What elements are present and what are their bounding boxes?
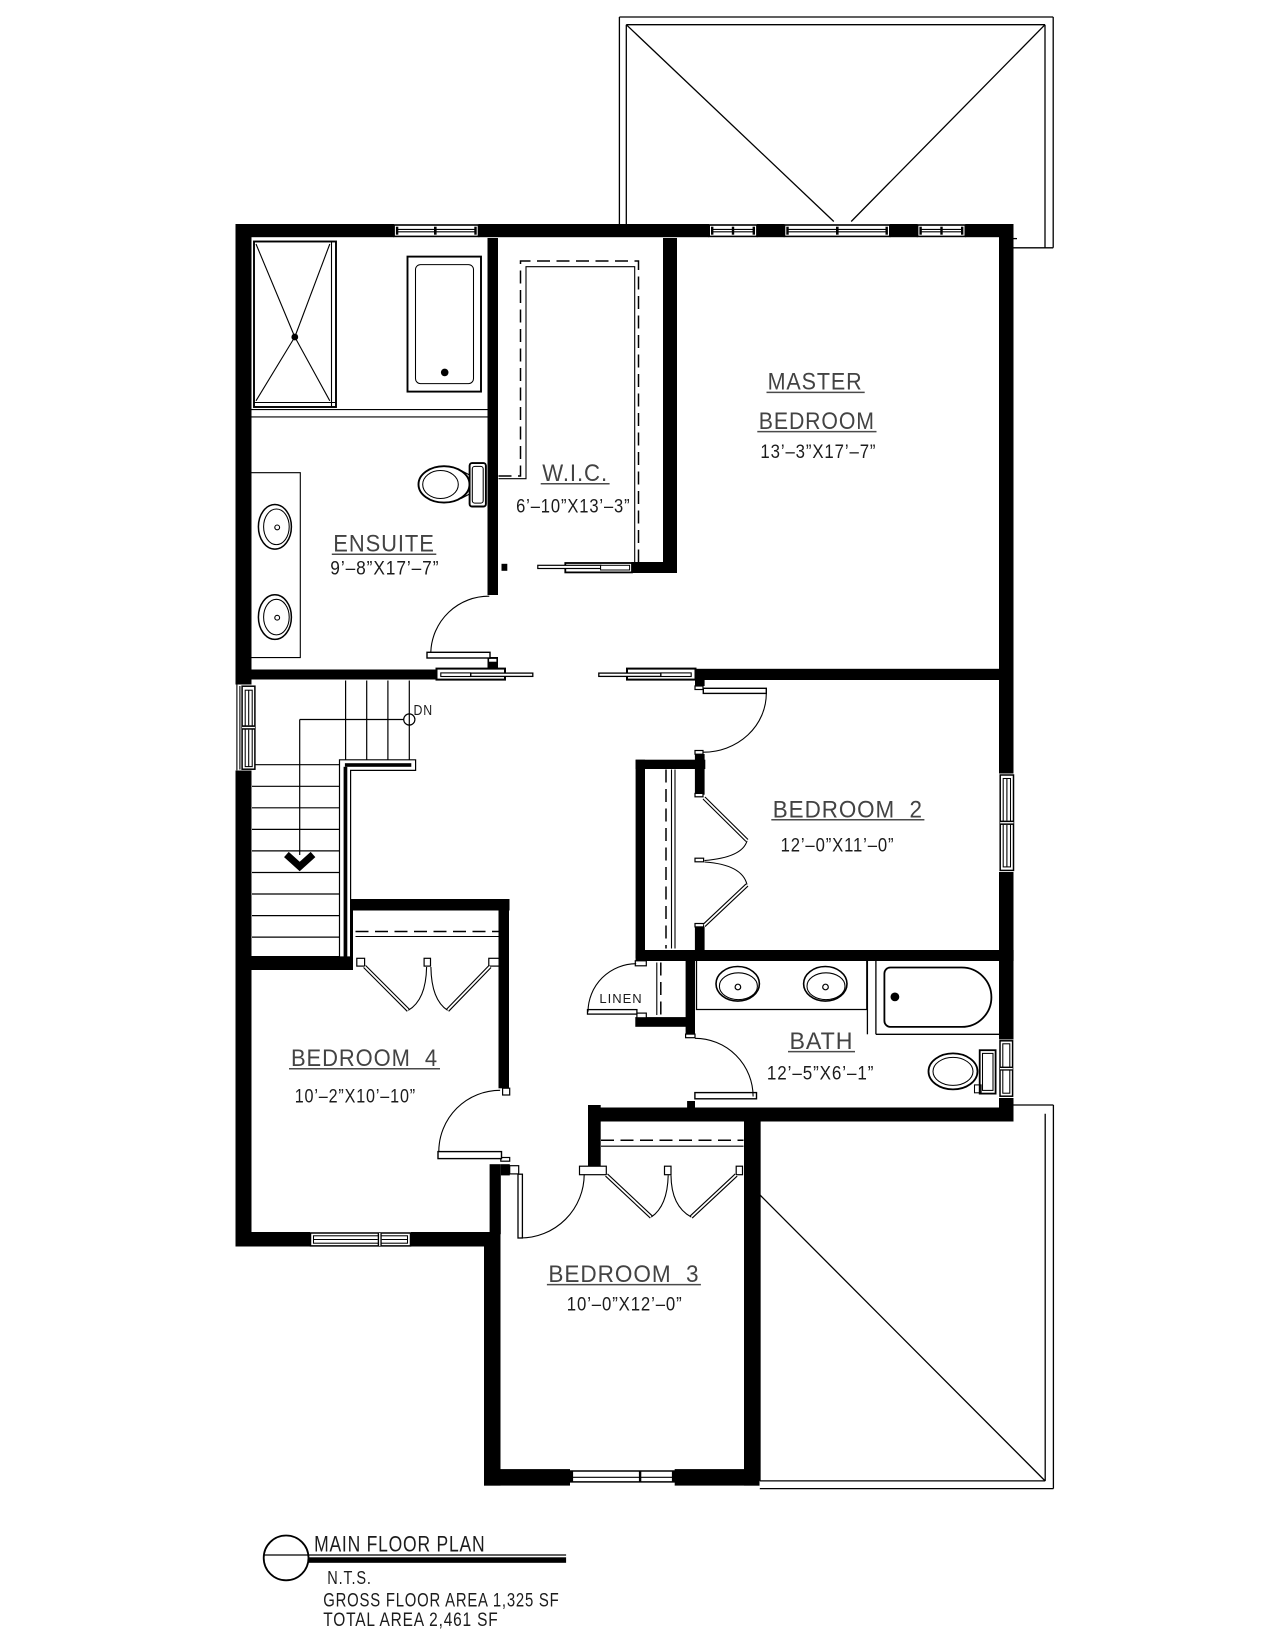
svg-text:N.T.S.: N.T.S. bbox=[327, 1568, 371, 1588]
svg-text:DN: DN bbox=[414, 703, 434, 719]
svg-text:12’–0”X11’–0”: 12’–0”X11’–0” bbox=[781, 836, 895, 857]
svg-text:LINEN: LINEN bbox=[599, 991, 642, 1006]
svg-text:TOTAL AREA 2,461 SF: TOTAL AREA 2,461 SF bbox=[323, 1610, 498, 1631]
svg-text:12’–5”X6’–1”: 12’–5”X6’–1” bbox=[767, 1064, 874, 1085]
svg-text:9’–8”X17’–7”: 9’–8”X17’–7” bbox=[330, 559, 439, 580]
svg-text:MAIN FLOOR PLAN: MAIN FLOOR PLAN bbox=[314, 1531, 485, 1556]
svg-text:10’–0”X12’–0”: 10’–0”X12’–0” bbox=[567, 1295, 683, 1316]
svg-text:GROSS FLOOR AREA 1,325 SF: GROSS FLOOR AREA 1,325 SF bbox=[323, 1590, 559, 1611]
svg-text:MASTER: MASTER bbox=[768, 369, 863, 396]
svg-text:6’–10”X13’–3”: 6’–10”X13’–3” bbox=[516, 497, 630, 518]
svg-text:W.I.C.: W.I.C. bbox=[542, 460, 608, 487]
svg-text:10’–2”X10’–10”: 10’–2”X10’–10” bbox=[295, 1087, 416, 1108]
svg-text:13’–3”X17’–7”: 13’–3”X17’–7” bbox=[760, 442, 876, 463]
